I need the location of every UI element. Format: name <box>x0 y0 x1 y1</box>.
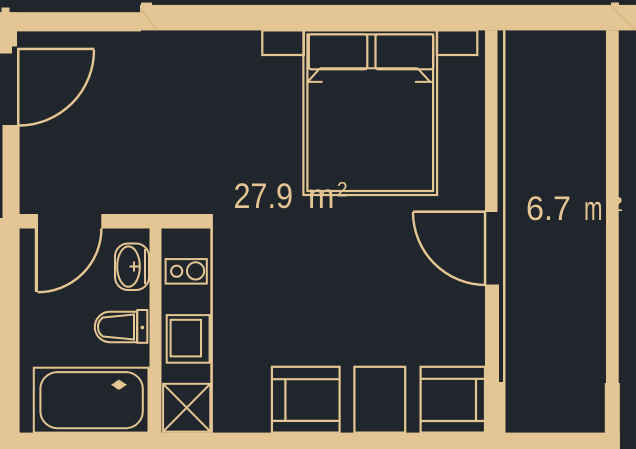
svg-text:27.9: 27.9 <box>234 177 294 216</box>
svg-text:6.7: 6.7 <box>526 190 571 228</box>
svg-text:m: m <box>308 177 335 216</box>
svg-text:m: m <box>584 190 603 228</box>
